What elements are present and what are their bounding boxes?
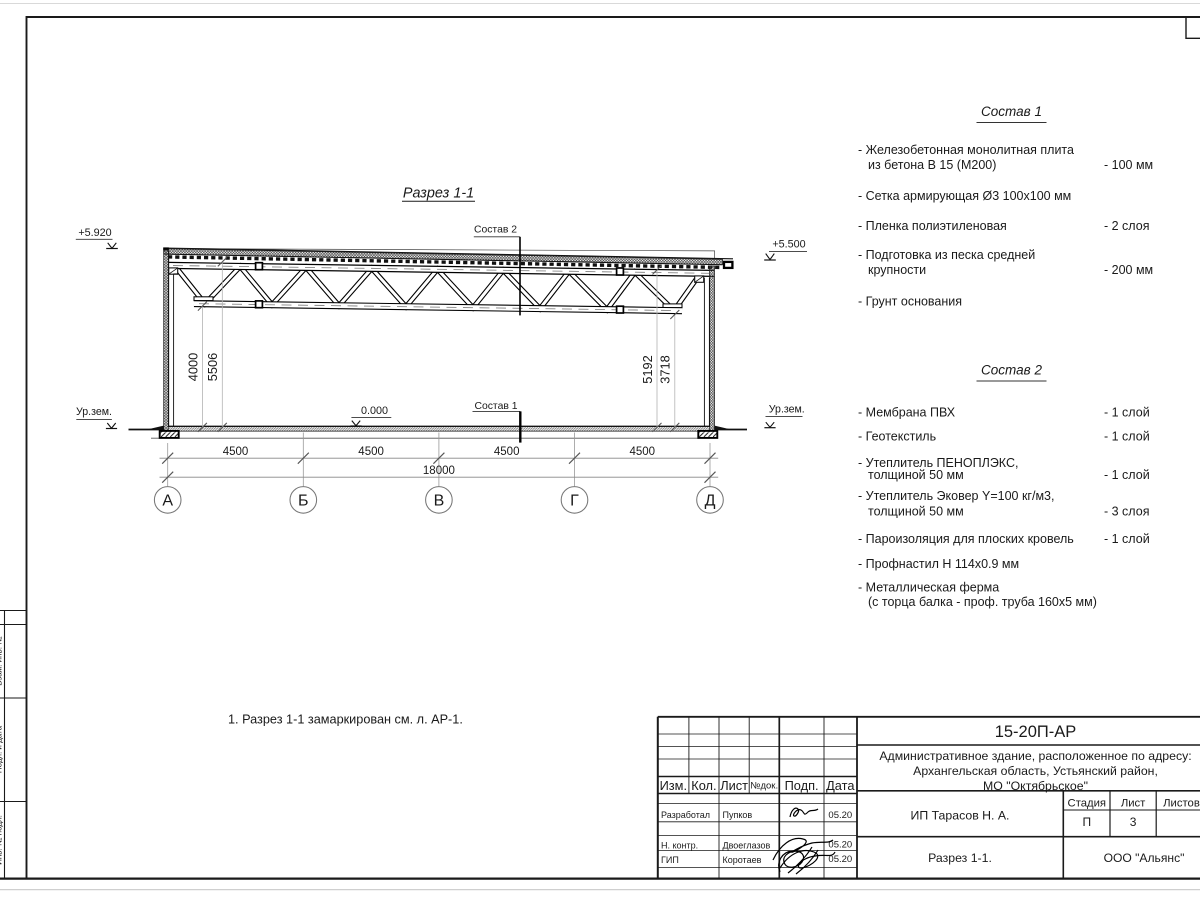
svg-text:4500: 4500: [223, 446, 249, 458]
svg-text:- 3 слоя: - 3 слоя: [1104, 504, 1149, 518]
svg-text:3718: 3718: [658, 355, 673, 383]
svg-text:Разработал: Разработал: [661, 810, 710, 820]
svg-text:Листов: Листов: [1163, 797, 1200, 809]
svg-text:Административное здание, распо: Административное здание, расположенное п…: [879, 749, 1191, 763]
svg-text:Стадия: Стадия: [1068, 797, 1107, 809]
svg-text:- 1 слой: - 1 слой: [1104, 429, 1150, 443]
svg-text:- 1 слой: - 1 слой: [1104, 405, 1150, 419]
svg-text:Разрез 1-1.: Разрез 1-1.: [928, 851, 992, 865]
svg-text:15-20П-АР: 15-20П-АР: [995, 723, 1077, 741]
svg-text:Г: Г: [570, 493, 579, 510]
svg-text:Двоеглазов: Двоеглазов: [723, 840, 771, 850]
svg-text:5506: 5506: [205, 353, 220, 381]
svg-text:- Геотекстиль: - Геотекстиль: [858, 429, 936, 443]
svg-text:- Подготовка из песка средней: - Подготовка из песка средней: [858, 248, 1035, 262]
svg-text:Лист: Лист: [1121, 797, 1146, 809]
svg-text:1. Разрез 1-1 замаркирован см.: 1. Разрез 1-1 замаркирован см. л. АР-1.: [228, 713, 463, 727]
svg-text:ГИП: ГИП: [661, 855, 679, 865]
svg-text:П: П: [1082, 815, 1091, 829]
svg-text:4500: 4500: [358, 446, 384, 458]
svg-text:Коротаев: Коротаев: [723, 855, 762, 865]
svg-text:- Профнастил Н 114х0.9 мм: - Профнастил Н 114х0.9 мм: [858, 557, 1019, 571]
svg-text:Состав 2: Состав 2: [474, 225, 517, 236]
svg-text:0.000: 0.000: [361, 405, 388, 417]
svg-text:- Металлическая ферма: - Металлическая ферма: [858, 581, 999, 595]
svg-text:толщиной 50 мм: толщиной 50 мм: [868, 468, 964, 482]
svg-text:Пупков: Пупков: [723, 810, 753, 820]
svg-text:- 1 слой: - 1 слой: [1104, 532, 1150, 546]
svg-text:Дата: Дата: [826, 778, 855, 793]
svg-text:- Утеплитель Эковер Y=100 кг/м: - Утеплитель Эковер Y=100 кг/м3,: [858, 489, 1054, 503]
svg-text:(с торца балка - проф. труба 1: (с торца балка - проф. труба 160х5 мм): [868, 595, 1097, 609]
svg-text:- 100 мм: - 100 мм: [1104, 158, 1153, 172]
svg-text:Подп. и дата: Подп. и дата: [0, 725, 4, 773]
svg-text:- Мембрана ПВХ: - Мембрана ПВХ: [858, 405, 956, 419]
svg-text:В: В: [434, 493, 445, 510]
svg-text:Состав 1: Состав 1: [474, 401, 517, 412]
svg-text:+5.500: +5.500: [772, 239, 805, 251]
svg-text:- Пленка полиэтиленовая: - Пленка полиэтиленовая: [858, 219, 1007, 233]
svg-text:ООО "Альянс": ООО "Альянс": [1104, 851, 1185, 865]
svg-text:- Грунт основания: - Грунт основания: [858, 295, 962, 309]
svg-text:Инв. № подл.: Инв. № подл.: [0, 815, 4, 865]
svg-text:- Пароизоляция для плоских кро: - Пароизоляция для плоских кровель: [858, 532, 1074, 546]
svg-text:Разрез 1-1: Разрез 1-1: [403, 186, 474, 202]
svg-text:Состав 2: Состав 2: [981, 362, 1042, 377]
svg-text:Архангельская область, Устьянс: Архангельская область, Устьянский район,: [913, 764, 1158, 778]
svg-text:- Сетка армирующая Ø3 100х100: - Сетка армирующая Ø3 100х100 мм: [858, 189, 1071, 203]
svg-text:4500: 4500: [494, 446, 520, 458]
svg-text:+5.920: +5.920: [78, 227, 111, 239]
svg-text:4500: 4500: [630, 446, 656, 458]
svg-text:из бетона В 15 (М200): из бетона В 15 (М200): [868, 158, 996, 172]
svg-text:Взам. инв. №: Взам. инв. №: [0, 636, 4, 686]
svg-text:- Железобетонная монолитная п: - Железобетонная монолитная плита: [858, 143, 1074, 157]
svg-text:4000: 4000: [185, 353, 200, 381]
svg-text:А: А: [162, 493, 173, 510]
svg-text:Состав 1: Состав 1: [981, 104, 1042, 119]
svg-text:05.20: 05.20: [828, 810, 852, 821]
svg-text:Лист: Лист: [720, 778, 748, 793]
svg-text:Б: Б: [298, 493, 309, 510]
svg-text:толщиной 50 мм: толщиной 50 мм: [868, 504, 964, 518]
svg-text:- 200 мм: - 200 мм: [1104, 263, 1153, 277]
svg-text:ИП Тарасов Н. А.: ИП Тарасов Н. А.: [911, 808, 1010, 822]
svg-text:Д: Д: [705, 493, 716, 510]
svg-text:Ур.зем.: Ур.зем.: [769, 404, 805, 416]
svg-text:Кол.: Кол.: [691, 778, 716, 793]
svg-text:МО "Октябрьское": МО "Октябрьское": [983, 779, 1088, 793]
svg-text:3: 3: [1130, 815, 1137, 829]
svg-text:- 2 слоя: - 2 слоя: [1104, 219, 1149, 233]
svg-text:Подп.: Подп.: [785, 778, 819, 793]
svg-text:18000: 18000: [423, 465, 455, 477]
svg-text:Ур.зем.: Ур.зем.: [76, 406, 112, 418]
svg-text:крупности: крупности: [868, 263, 926, 277]
svg-text:№док.: №док.: [750, 781, 778, 792]
svg-text:Н. контр.: Н. контр.: [661, 840, 698, 850]
svg-text:- 1 слой: - 1 слой: [1104, 468, 1150, 482]
svg-text:5192: 5192: [640, 355, 655, 383]
svg-text:Изм.: Изм.: [660, 778, 687, 793]
